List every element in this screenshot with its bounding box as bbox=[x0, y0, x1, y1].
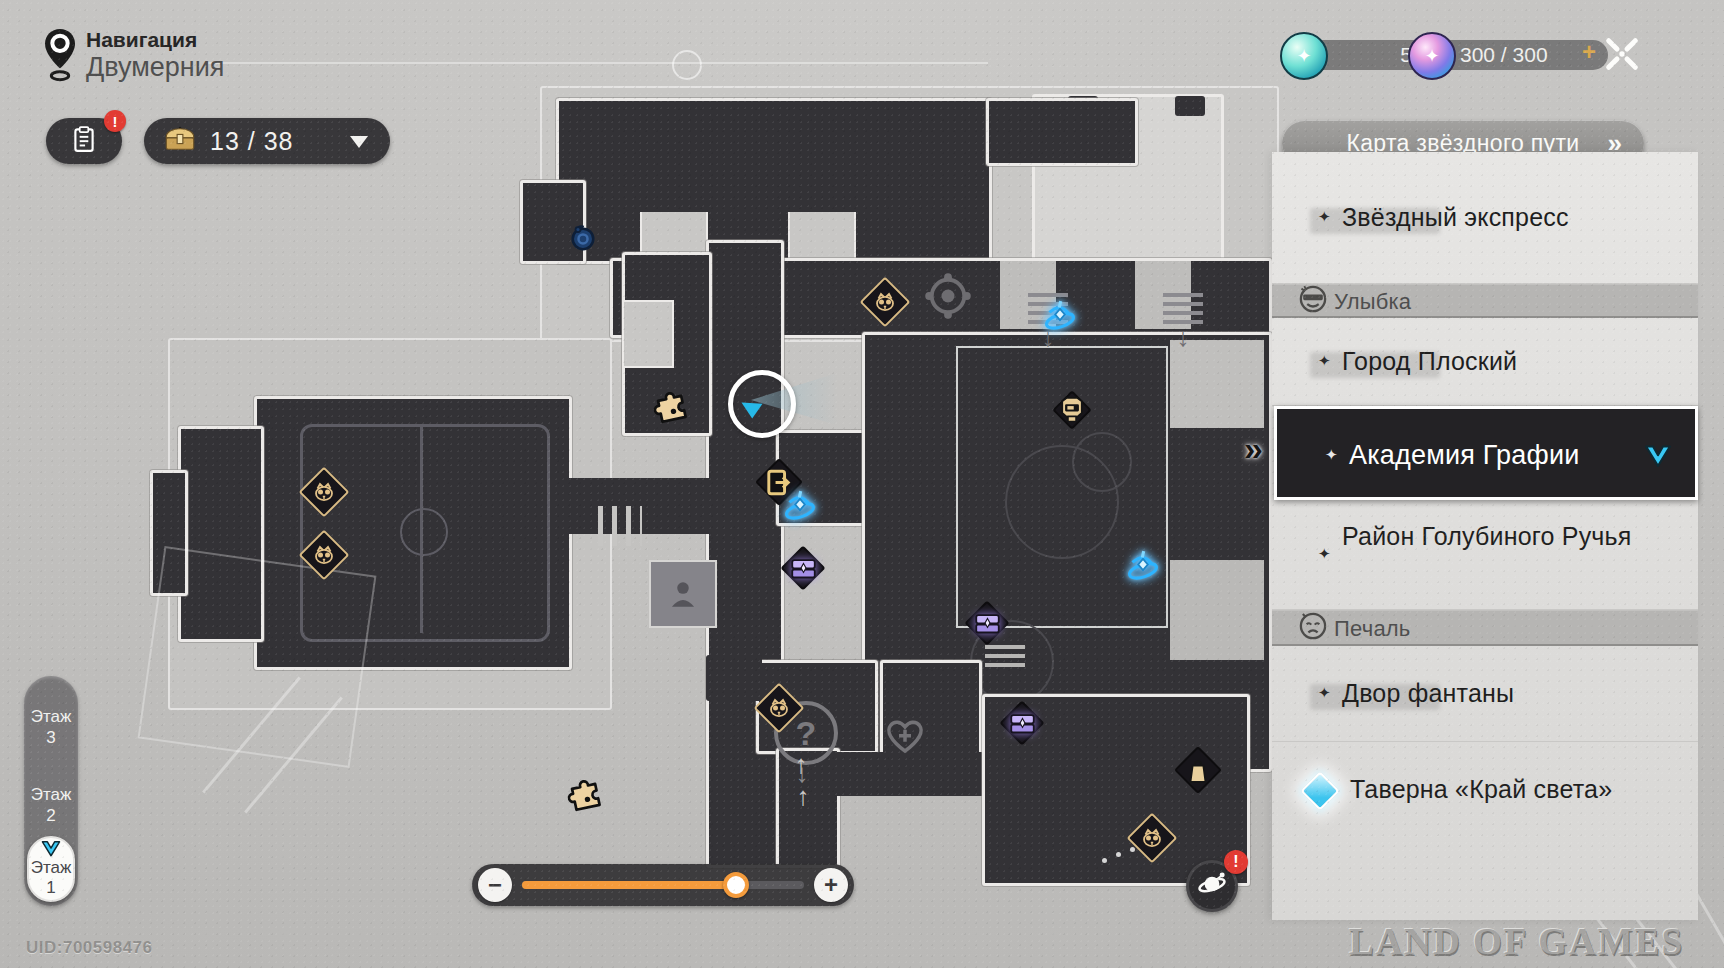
sidebar-item-sadness-header: Печаль bbox=[1272, 610, 1698, 646]
map-marker-space-anchor[interactable] bbox=[1039, 297, 1081, 339]
game-map-screen: ↓↓?↓↑↑ Навигация Двумерния ! bbox=[0, 0, 1724, 968]
teleport-diamond-icon bbox=[1300, 771, 1340, 811]
floor-item[interactable]: Этаж2 bbox=[24, 784, 78, 826]
map-corridor-vertical bbox=[706, 240, 784, 868]
region-subtitle: Двумерния bbox=[86, 52, 224, 83]
star-bullet-icon: ✦ bbox=[1318, 208, 1331, 226]
person-icon bbox=[666, 577, 700, 611]
map-marker-purple-chest[interactable] bbox=[967, 603, 1007, 643]
sad-face-icon bbox=[1298, 611, 1328, 645]
map-marker-trotter-chest[interactable] bbox=[1130, 816, 1174, 860]
floor-item-selected[interactable]: Этаж1 bbox=[27, 836, 75, 902]
chest-counter-dropdown[interactable]: 13 / 38 bbox=[144, 118, 390, 164]
space-navigation-button[interactable]: ! bbox=[1186, 860, 1238, 912]
floor-item[interactable]: Этаж3 bbox=[24, 706, 78, 748]
sidebar-item-flat-city[interactable]: ✦Город Плоский bbox=[1272, 318, 1698, 406]
location-pin-icon bbox=[40, 26, 80, 82]
star-bullet-icon: ✦ bbox=[1325, 446, 1338, 464]
chest-icon bbox=[164, 126, 196, 156]
chevron-down-icon[interactable] bbox=[1643, 444, 1673, 473]
close-button[interactable] bbox=[1602, 34, 1642, 74]
sidebar-item-grafio-academy[interactable]: ✦Академия Графии bbox=[1274, 406, 1698, 500]
alert-badge: ! bbox=[104, 110, 126, 132]
stellar-jade-icon: ✦ bbox=[1280, 32, 1328, 80]
uid-label: UID:700598476 bbox=[26, 938, 153, 958]
map-marker-trotter-chest[interactable] bbox=[302, 470, 346, 514]
clipboard-icon bbox=[71, 125, 97, 157]
selection-cursor-icon: » bbox=[1244, 429, 1263, 468]
map-marker-space-anchor[interactable] bbox=[1122, 547, 1164, 589]
watermark: LAND OF GAMES bbox=[1349, 920, 1684, 963]
map-marker-purple-chest[interactable] bbox=[1002, 703, 1042, 743]
zoom-in-button[interactable]: + bbox=[814, 868, 848, 902]
page-title: Навигация bbox=[86, 28, 197, 52]
fuel-plus-button[interactable]: + bbox=[1582, 38, 1596, 66]
sidebar-item-pigeon-creek[interactable]: ✦Район Голубиного Ручья bbox=[1272, 500, 1698, 610]
zoom-slider-knob[interactable] bbox=[723, 872, 749, 898]
zoom-slider-track[interactable] bbox=[522, 881, 804, 889]
map-decal-heart-cross bbox=[882, 715, 928, 759]
zoom-slider-fill bbox=[522, 881, 734, 889]
map-marker-puzzle-piece[interactable] bbox=[650, 384, 693, 427]
star-bullet-icon: ✦ bbox=[1318, 352, 1331, 370]
floor-selector[interactable]: Этаж3Этаж2Этаж1 bbox=[24, 676, 78, 906]
fuel-icon: ✦ bbox=[1408, 32, 1456, 80]
map-decal-person-room bbox=[649, 560, 717, 628]
map-marker-puzzle-piece[interactable] bbox=[564, 772, 607, 815]
alert-badge: ! bbox=[1224, 850, 1248, 874]
map-marker-blue-creature[interactable] bbox=[568, 222, 598, 252]
sidebar-item-tavern-edge[interactable]: Таверна «Край света» bbox=[1272, 742, 1698, 838]
star-bullet-icon: ✦ bbox=[1318, 684, 1331, 702]
map-decal-compass bbox=[922, 270, 974, 326]
map-marker-shop-bag[interactable] bbox=[1177, 749, 1219, 791]
location-list-panel: ✦Звёздный экспрессУлыбка✦Город Плоский»✦… bbox=[1272, 152, 1698, 920]
quest-log-button[interactable]: ! bbox=[46, 118, 122, 164]
fuel-value: 300 / 300 bbox=[1460, 43, 1548, 67]
map-marker-trotter-chest[interactable] bbox=[863, 280, 907, 324]
chest-counter-value: 13 / 38 bbox=[210, 127, 293, 156]
planet-icon bbox=[1195, 867, 1229, 905]
dropdown-arrow-icon bbox=[350, 136, 368, 148]
heart-cross-decal bbox=[882, 715, 928, 755]
map-marker-robot-head[interactable] bbox=[1054, 392, 1090, 428]
zoom-out-button[interactable]: − bbox=[478, 868, 512, 902]
star-bullet-icon: ✦ bbox=[1318, 545, 1331, 563]
map-marker-purple-chest[interactable] bbox=[783, 548, 823, 588]
map-marker-space-anchor[interactable] bbox=[779, 487, 821, 529]
smile-face-icon bbox=[1298, 284, 1328, 318]
sidebar-item-smile-header: Улыбка bbox=[1272, 284, 1698, 318]
map-marker-trotter-chest[interactable] bbox=[302, 533, 346, 577]
map-marker-trotter-chest[interactable] bbox=[757, 686, 801, 730]
sidebar-item-fountain-yard[interactable]: ✦Двор фантаны bbox=[1272, 646, 1698, 742]
chevron-down-icon bbox=[40, 840, 62, 858]
sidebar-item-star-express[interactable]: ✦Звёздный экспресс bbox=[1272, 152, 1698, 284]
zoom-slider[interactable]: − + bbox=[472, 864, 854, 906]
